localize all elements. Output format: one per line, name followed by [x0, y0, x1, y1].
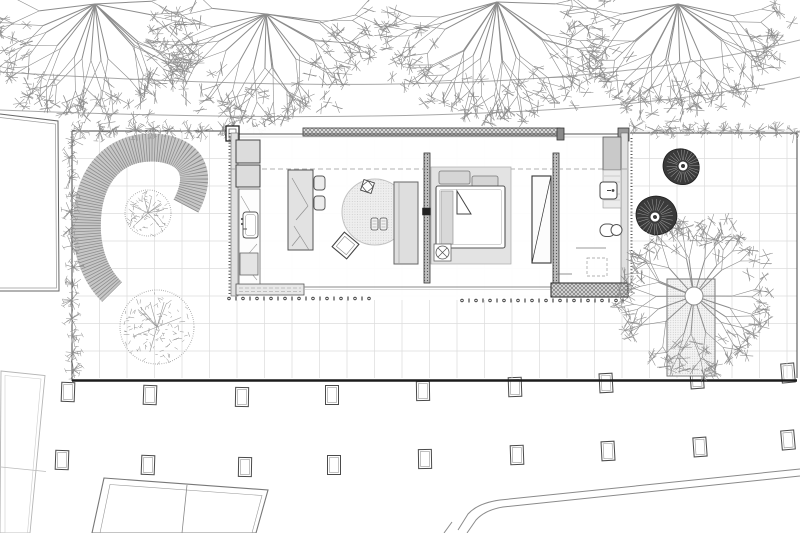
paver-bollard — [418, 449, 431, 468]
paver-bollard — [141, 455, 155, 474]
daybed-sofa — [394, 182, 418, 264]
paver-bollard — [416, 381, 429, 400]
floor-plan-canvas — [0, 0, 800, 533]
plaza-slab-corner — [0, 371, 45, 533]
paver-bollard — [510, 445, 524, 464]
shade-canopy — [631, 190, 682, 240]
stool-2 — [314, 196, 325, 210]
pavilion-building — [226, 126, 632, 303]
site-plan-drawing — [0, 0, 800, 533]
south-step — [236, 284, 304, 295]
partition-post — [423, 208, 432, 215]
east-courtyard — [610, 146, 774, 381]
kitchen-appliance — [240, 253, 258, 275]
paver-bollard — [326, 386, 339, 405]
paver-bollard — [599, 373, 613, 393]
paver-bollard — [601, 441, 615, 461]
paver-bollard — [235, 387, 248, 406]
east-wall — [621, 133, 628, 293]
shade-canopy — [660, 146, 702, 187]
plaza — [0, 363, 800, 533]
pillow-1 — [439, 171, 470, 184]
stool-1 — [314, 176, 325, 190]
shower — [603, 137, 621, 170]
paver-bollard — [238, 457, 251, 476]
neighbor-building-outline — [0, 114, 59, 291]
paver-bollard — [143, 385, 157, 404]
paver-bollard — [61, 382, 75, 401]
bed-runner — [441, 191, 453, 244]
north-column — [557, 128, 564, 140]
paver-bollard — [693, 437, 707, 457]
kitchen-island — [288, 170, 313, 250]
plaza-slab-large — [92, 478, 268, 533]
paver-bollard — [781, 430, 796, 450]
plaza-path-edge — [444, 522, 452, 533]
paver-bollard — [55, 450, 69, 469]
paver-bollard — [328, 456, 341, 475]
storage-unit-2 — [236, 165, 260, 187]
plaza-path-edge — [467, 476, 800, 533]
plaza-path-edge — [458, 469, 800, 530]
pillow-2 — [472, 176, 498, 187]
storage-unit-1 — [236, 140, 260, 163]
